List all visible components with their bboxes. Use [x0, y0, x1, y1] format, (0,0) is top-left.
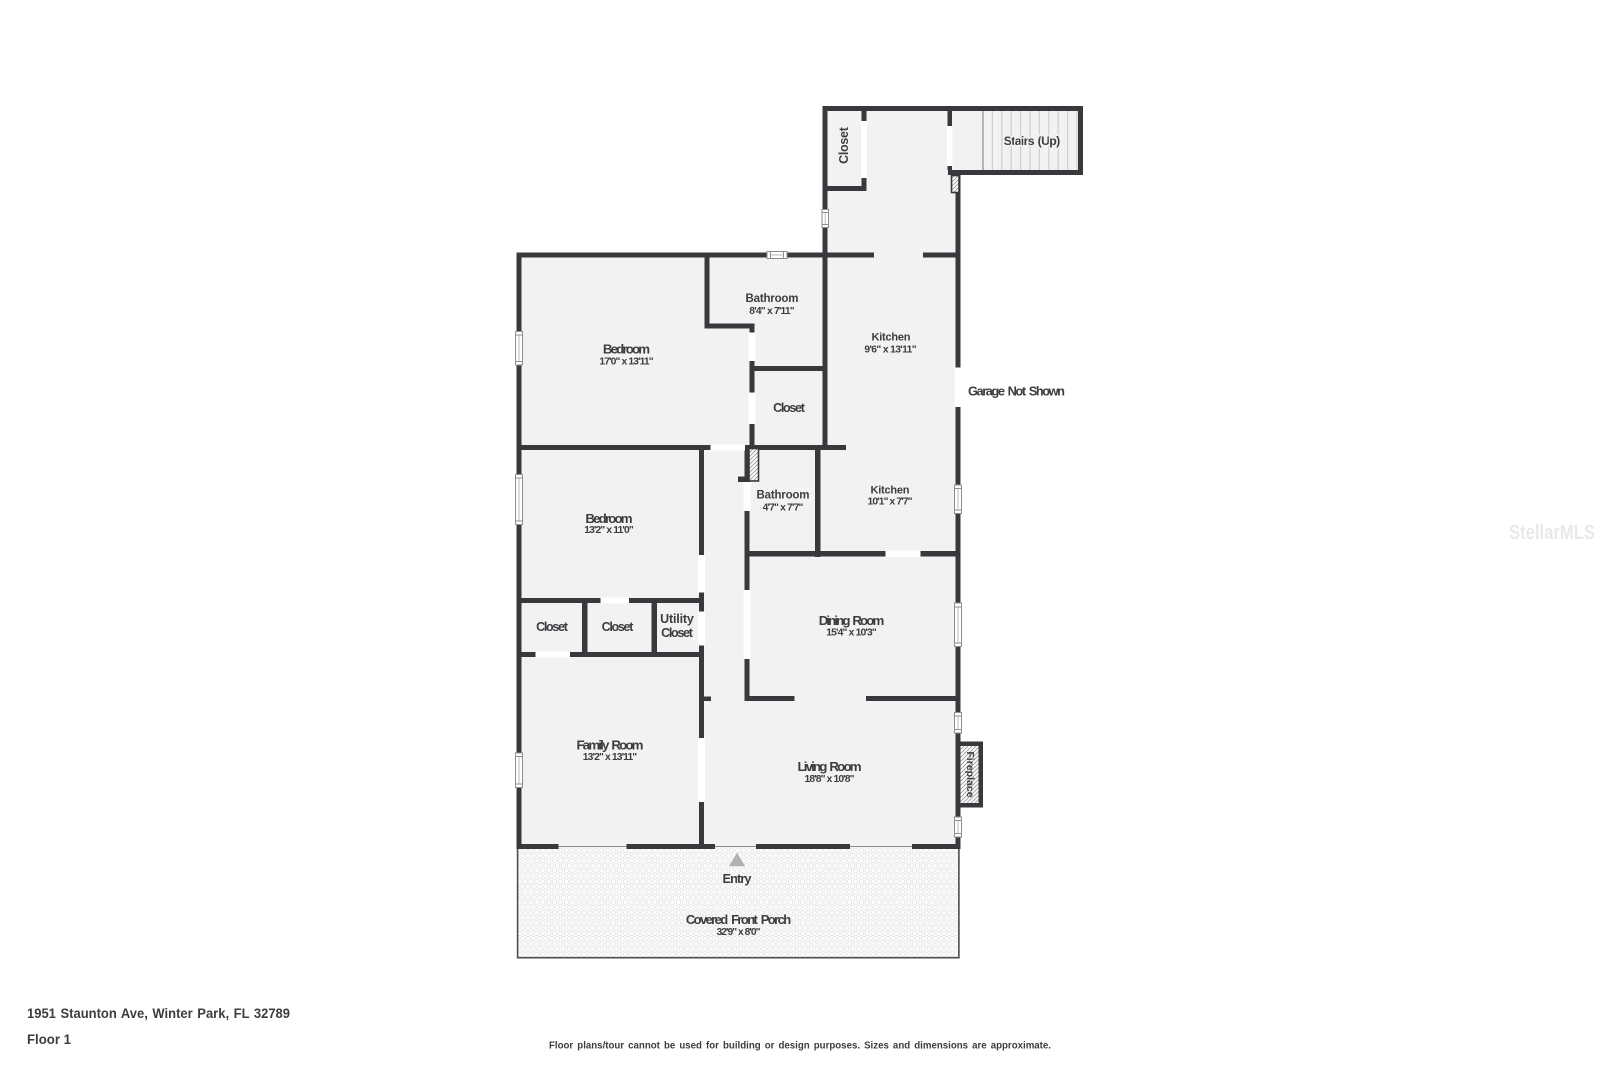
svg-text:Floor plans/tour cannot be use: Floor plans/tour cannot be used for buil…	[549, 1040, 1051, 1052]
svg-text:8'4" x 7'11": 8'4" x 7'11"	[749, 306, 795, 317]
svg-text:Utility: Utility	[660, 612, 694, 626]
svg-text:18'8" x 10'8": 18'8" x 10'8"	[805, 774, 855, 785]
svg-text:Closet: Closet	[661, 626, 694, 640]
svg-text:Dining Room: Dining Room	[819, 613, 885, 628]
svg-text:Covered Front Porch: Covered Front Porch	[686, 912, 791, 927]
svg-text:13'2" x 13'11": 13'2" x 13'11"	[583, 752, 638, 763]
svg-text:13'2" x 11'0": 13'2" x 11'0"	[584, 525, 634, 536]
svg-text:Garage Not Shown: Garage Not Shown	[968, 384, 1065, 399]
svg-text:1951 Staunton Ave, Winter Park: 1951 Staunton Ave, Winter Park, FL 32789	[27, 1006, 290, 1021]
svg-text:Closet: Closet	[837, 126, 851, 164]
svg-text:4'7" x 7'7": 4'7" x 7'7"	[763, 503, 804, 514]
svg-text:Bedroom: Bedroom	[603, 342, 650, 357]
svg-text:Bathroom: Bathroom	[746, 293, 799, 305]
svg-text:Stairs (Up): Stairs (Up)	[1004, 134, 1061, 148]
svg-text:Fireplace: Fireplace	[964, 751, 975, 798]
svg-text:Closet: Closet	[602, 620, 635, 634]
svg-text:StellarMLS: StellarMLS	[1509, 522, 1595, 544]
svg-text:Closet: Closet	[773, 401, 806, 415]
svg-text:Kitchen: Kitchen	[872, 332, 911, 344]
svg-text:9'6" x 13'11": 9'6" x 13'11"	[864, 345, 916, 356]
svg-text:10'1" x 7'7": 10'1" x 7'7"	[868, 497, 913, 508]
svg-text:Family Room: Family Room	[577, 738, 644, 753]
svg-text:Floor 1: Floor 1	[27, 1032, 71, 1047]
svg-text:Entry: Entry	[723, 871, 753, 886]
svg-text:Kitchen: Kitchen	[871, 485, 910, 497]
svg-text:17'0" x 13'11": 17'0" x 13'11"	[599, 357, 653, 368]
svg-text:15'4" x 10'3": 15'4" x 10'3"	[826, 628, 877, 639]
svg-text:Living Room: Living Room	[797, 759, 861, 774]
svg-text:32'9" x 8'0": 32'9" x 8'0"	[716, 927, 760, 938]
svg-text:Closet: Closet	[536, 620, 569, 634]
svg-text:Bedroom: Bedroom	[585, 511, 632, 526]
svg-text:Bathroom: Bathroom	[757, 490, 810, 502]
